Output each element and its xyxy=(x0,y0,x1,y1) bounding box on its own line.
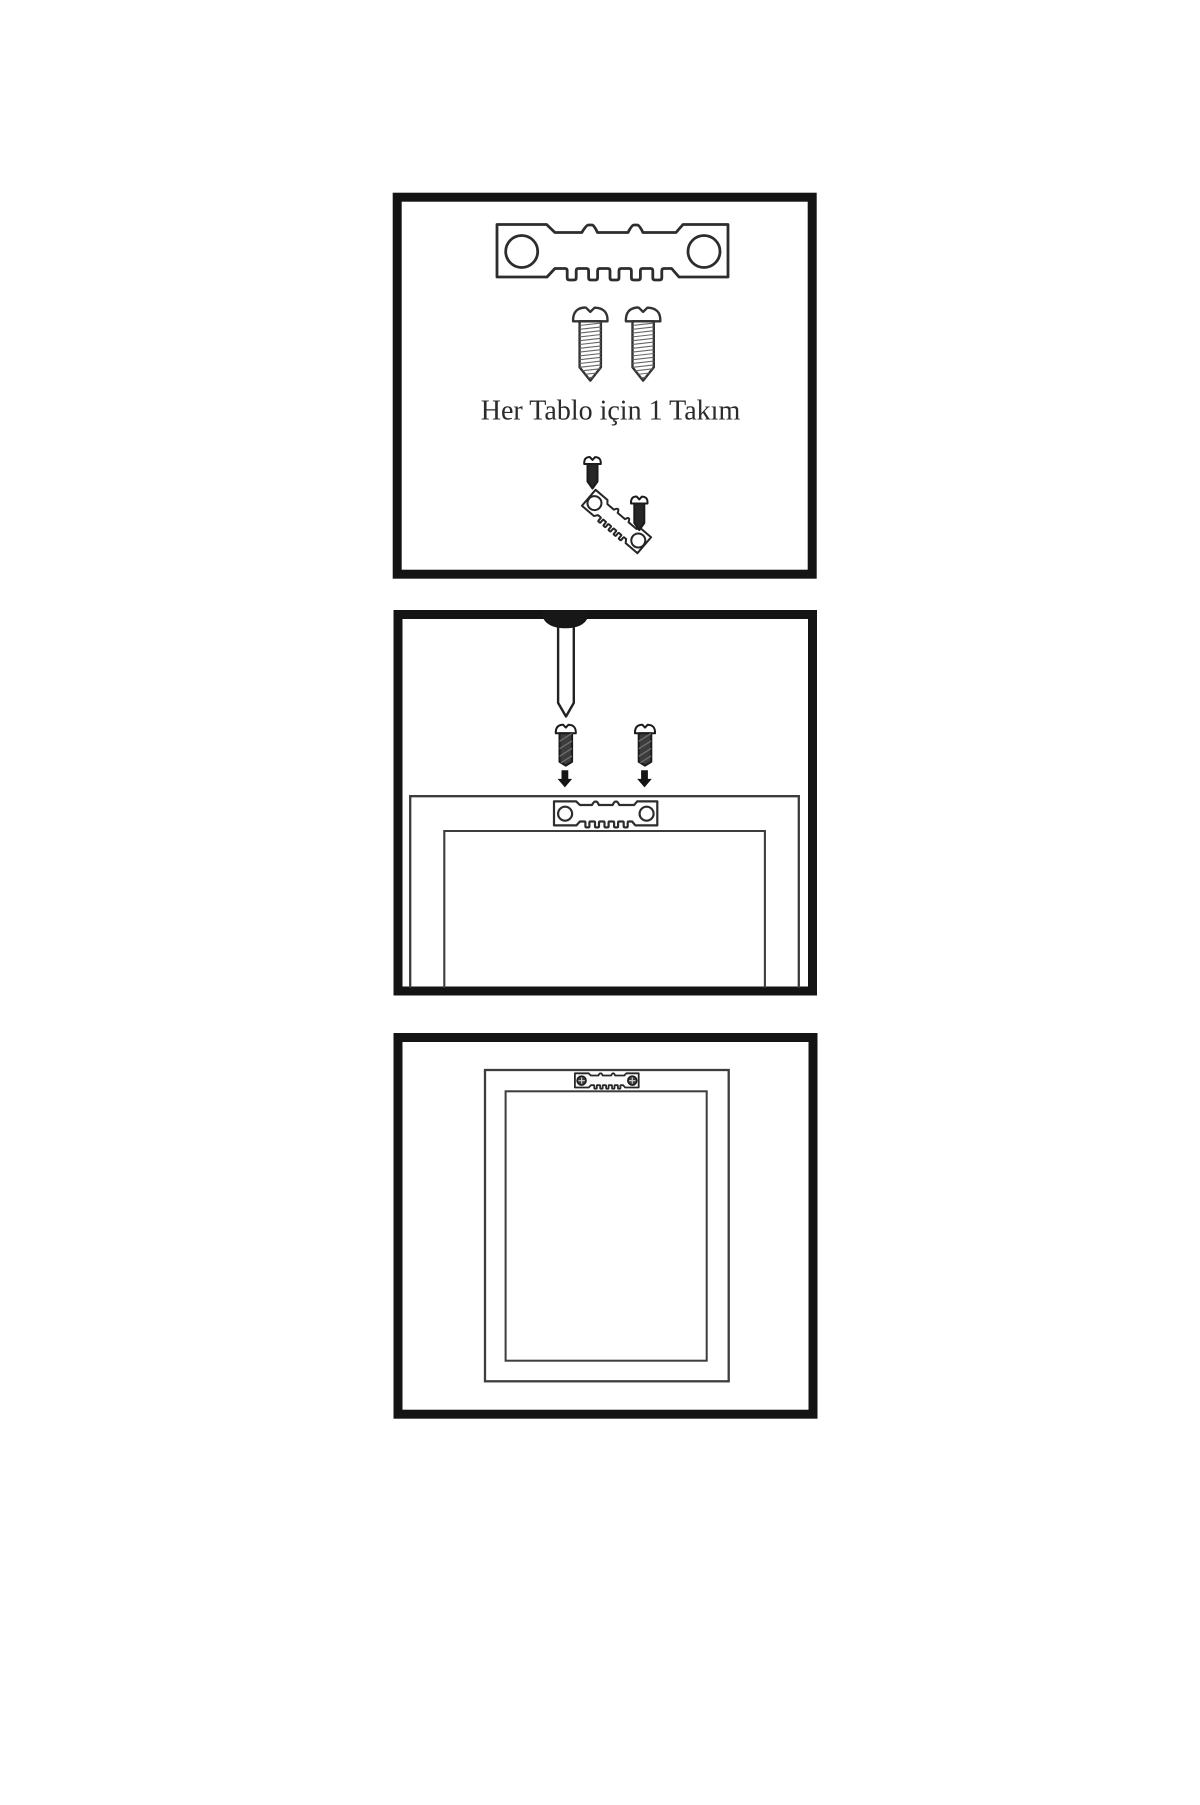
svg-text:Her Tablo için 1 Takım: Her Tablo için 1 Takım xyxy=(481,396,741,427)
